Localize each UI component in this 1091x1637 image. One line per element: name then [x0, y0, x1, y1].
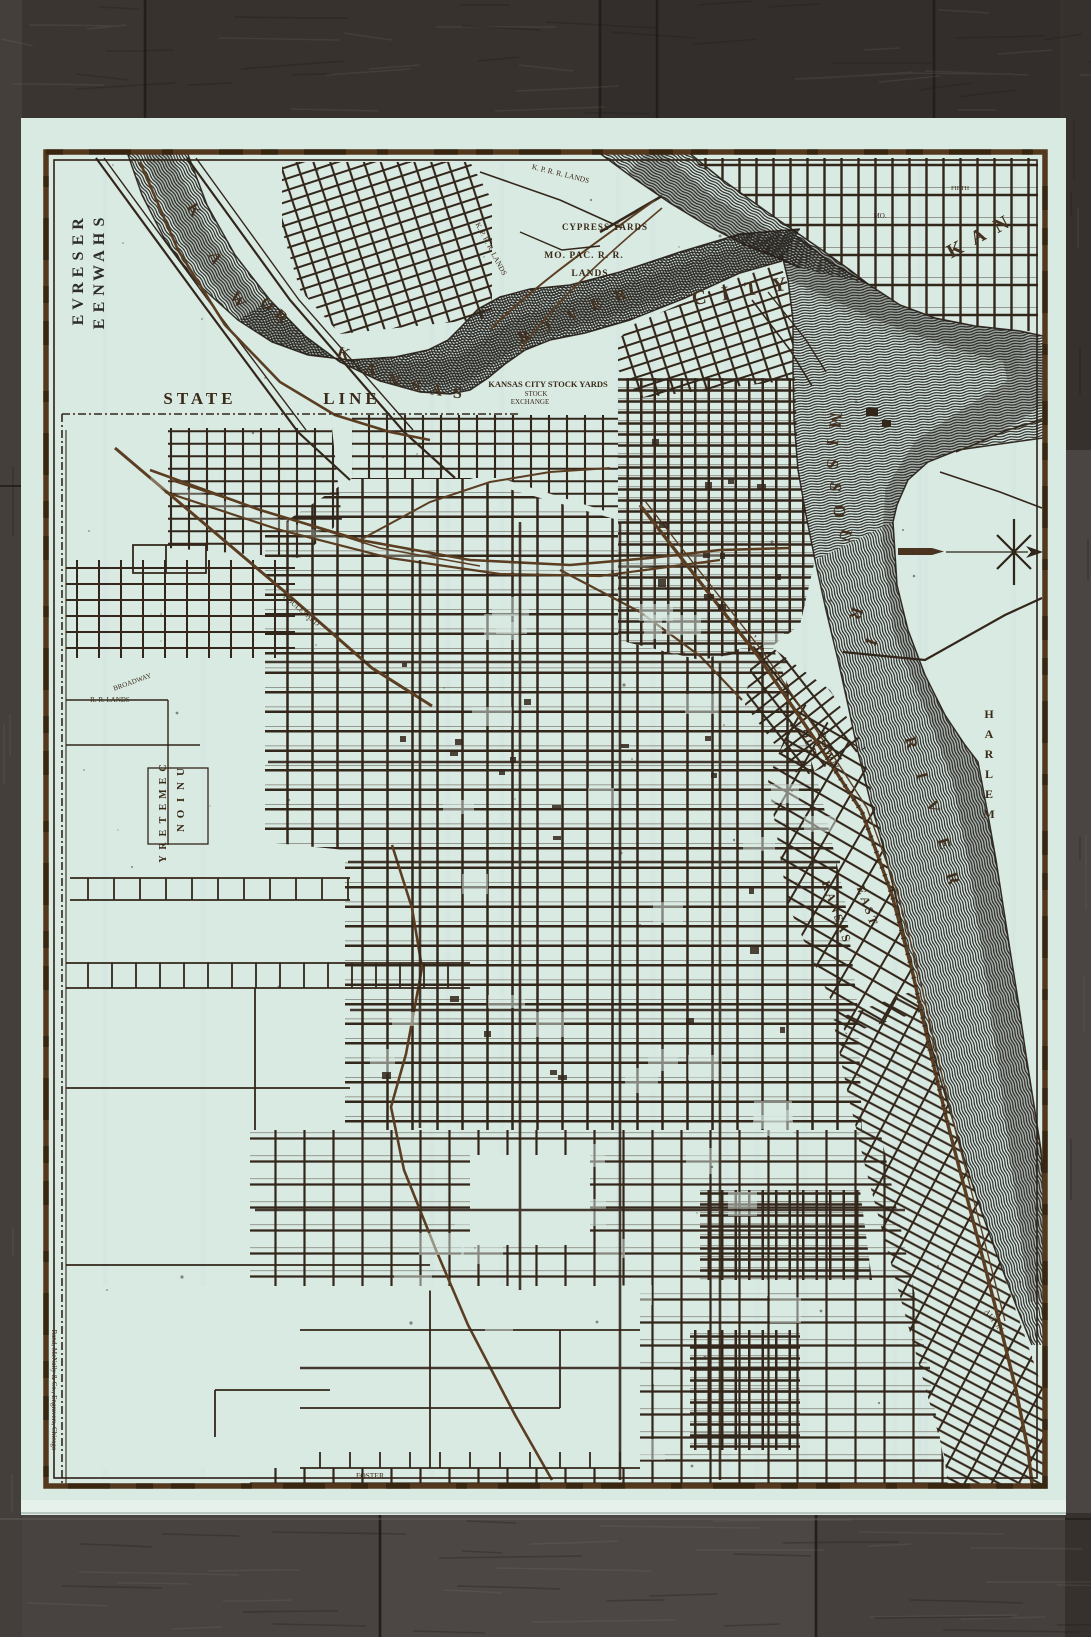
svg-text:E: E [985, 787, 993, 801]
svg-text:E: E [91, 302, 108, 313]
svg-text:C: C [158, 764, 169, 771]
svg-text:U: U [175, 768, 187, 776]
svg-text:M: M [825, 412, 845, 430]
svg-text:O: O [175, 809, 187, 818]
svg-text:E: E [158, 803, 169, 810]
svg-text:E: E [91, 319, 108, 330]
svg-text:N: N [91, 284, 108, 296]
svg-text:H: H [91, 232, 108, 245]
svg-text:R: R [158, 842, 169, 850]
svg-text:MO. PAC. R. R.: MO. PAC. R. R. [544, 251, 624, 261]
svg-text:E: E [70, 267, 87, 278]
svg-text:S: S [91, 217, 108, 226]
svg-text:FIFTH: FIFTH [951, 185, 969, 192]
svg-text:W: W [91, 265, 108, 281]
svg-text:STOCK: STOCK [525, 390, 548, 398]
svg-text:KANSAS CITY STOCK YARDS: KANSAS CITY STOCK YARDS [488, 379, 608, 389]
svg-text:R: R [70, 282, 87, 294]
svg-text:M: M [983, 807, 994, 821]
svg-text:R: R [70, 218, 87, 230]
svg-text:T: T [158, 816, 169, 823]
svg-text:Rand, McNally & Co., Engravers: Rand, McNally & Co., Engravers, Chicago [50, 1330, 58, 1451]
svg-text:N: N [175, 824, 187, 832]
svg-text:M: M [158, 789, 169, 799]
svg-text:R: R [985, 747, 994, 761]
svg-text:STATE: STATE [163, 389, 236, 408]
svg-text:E: E [158, 829, 169, 836]
svg-text:Y: Y [158, 855, 169, 863]
svg-text:V: V [70, 298, 87, 310]
svg-text:CYPRESS YARDS: CYPRESS YARDS [562, 222, 648, 232]
svg-text:E: E [70, 235, 87, 246]
svg-text:LINE: LINE [323, 389, 381, 408]
svg-text:E: E [70, 315, 87, 326]
svg-text:EXCHANGE: EXCHANGE [511, 398, 550, 406]
svg-text:A: A [985, 727, 994, 741]
svg-text:H: H [984, 707, 994, 721]
svg-text:LANDS: LANDS [571, 269, 608, 279]
svg-text:R. R. LANDS: R. R. LANDS [90, 696, 130, 704]
svg-text:FOSTER: FOSTER [356, 1471, 384, 1480]
svg-text:I: I [175, 798, 187, 802]
svg-text:C: C [690, 286, 707, 310]
svg-text:N: N [175, 782, 187, 790]
svg-text:MO.: MO. [873, 212, 886, 220]
svg-text:A: A [91, 250, 108, 262]
svg-text:E: E [158, 777, 169, 784]
svg-text:S: S [452, 385, 463, 403]
svg-text:S: S [70, 251, 87, 260]
svg-text:L: L [985, 767, 993, 781]
